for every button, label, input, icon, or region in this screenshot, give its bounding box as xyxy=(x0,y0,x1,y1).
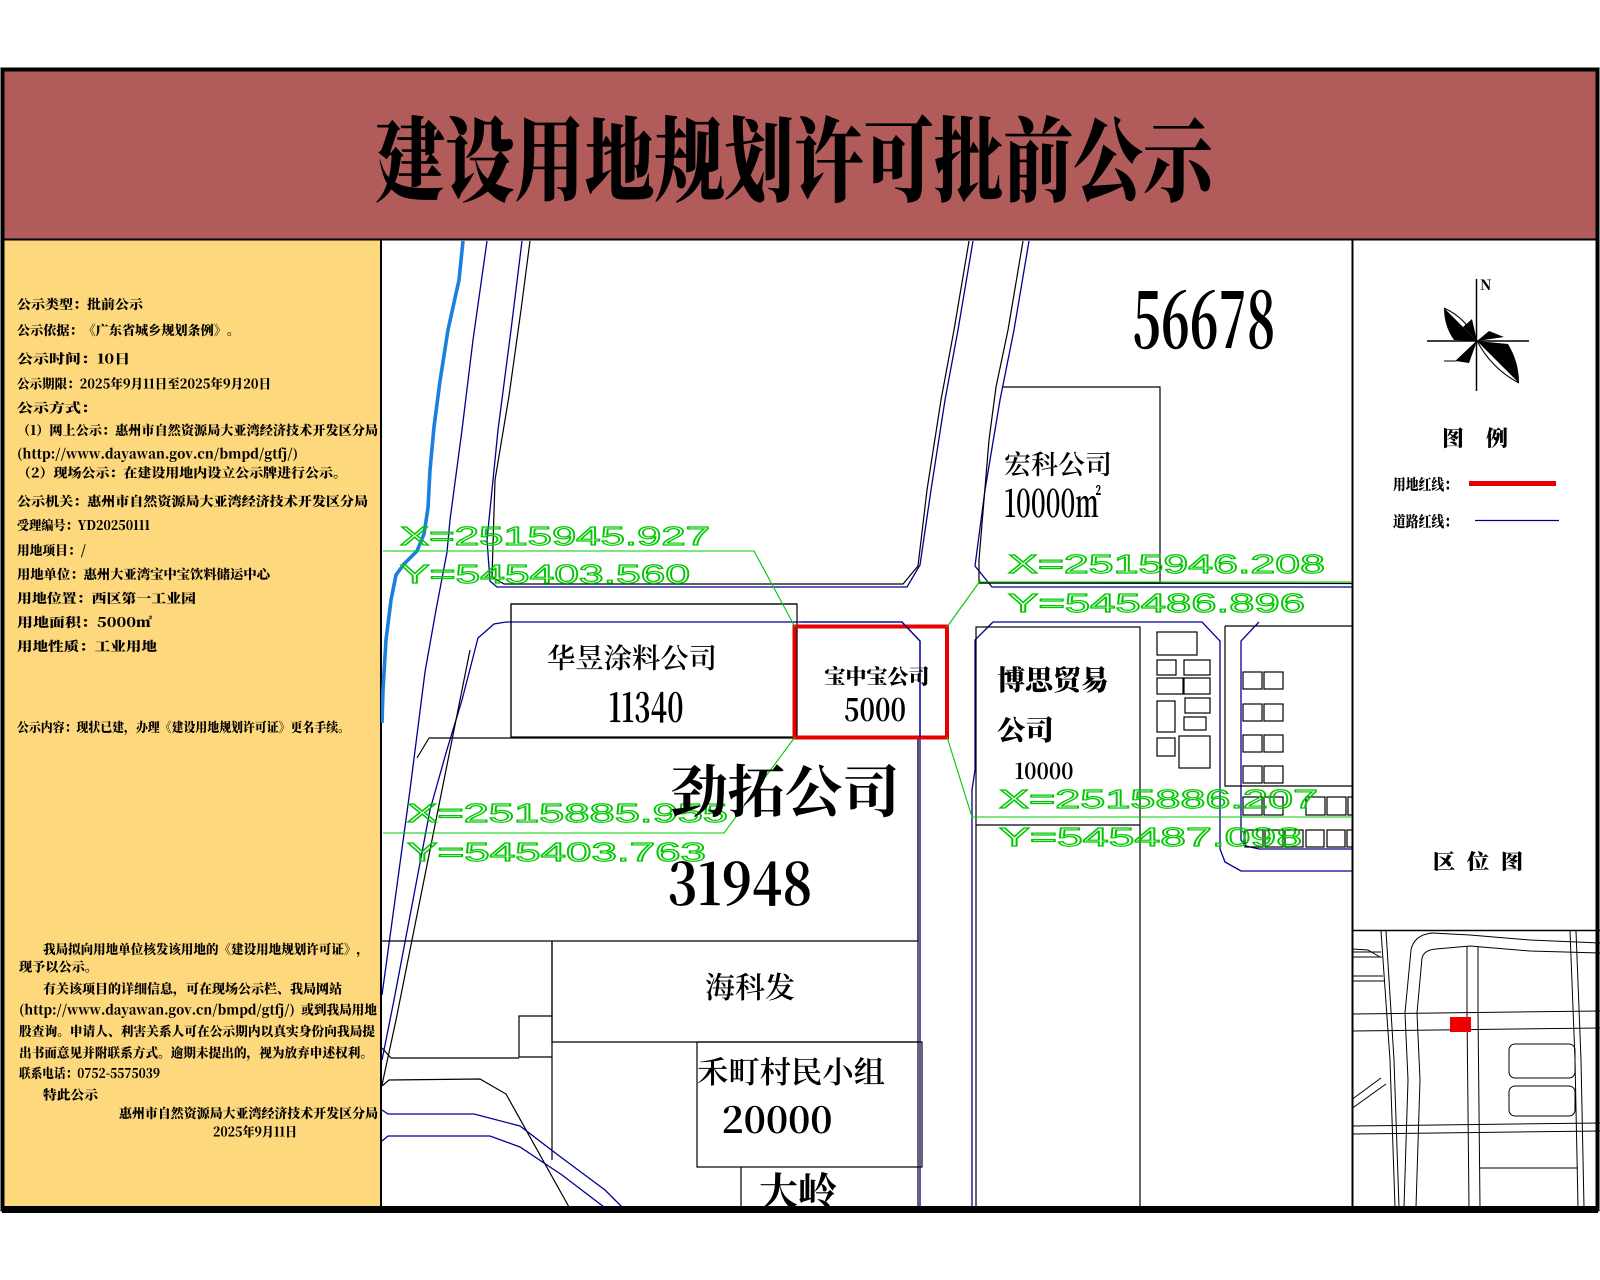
svg-text:Y=545486.896: Y=545486.896 xyxy=(1008,588,1305,618)
svg-text:X=2515945.927: X=2515945.927 xyxy=(400,521,710,551)
svg-text:Y=545403.560: Y=545403.560 xyxy=(400,559,690,589)
svg-text:Y=545487.098: Y=545487.098 xyxy=(999,822,1302,852)
svg-text:Y=545403.763: Y=545403.763 xyxy=(407,837,706,867)
svg-text:X=2515946.208: X=2515946.208 xyxy=(1008,549,1325,579)
svg-text:X=2515886.207: X=2515886.207 xyxy=(999,784,1318,814)
